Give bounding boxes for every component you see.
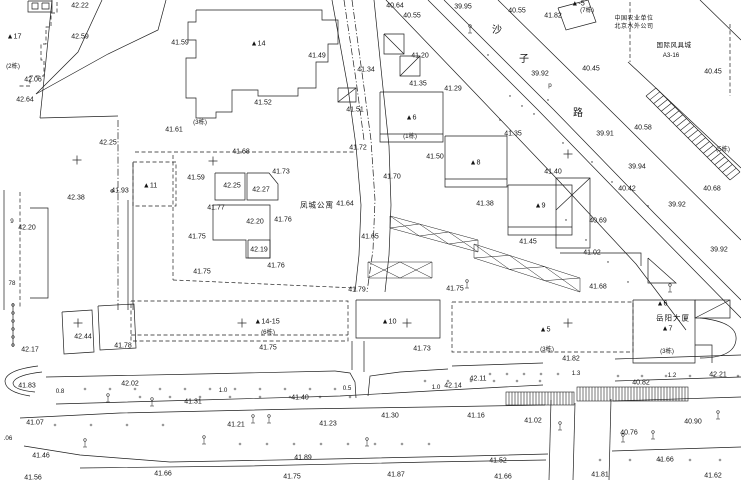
- spot-elevation-label: 41.40: [291, 395, 309, 402]
- spot-elevation-label: 41.77: [207, 205, 225, 212]
- annotation-label: 1.3: [572, 371, 581, 377]
- street-name-char: 沙: [492, 26, 502, 36]
- organization-name-label: 北京水外公司: [614, 24, 653, 30]
- spot-elevation-label: 42.27: [252, 187, 270, 194]
- spot-elevation-label: 40.58: [634, 125, 652, 132]
- building-number-label: ▲7: [661, 324, 672, 331]
- annotation-label: (6栋): [261, 330, 275, 336]
- annotation-label: 9: [10, 219, 13, 225]
- organization-name-label: 中国农业单位: [614, 16, 653, 22]
- spot-elevation-label: 41.75: [446, 286, 464, 293]
- spot-elevation-label: 41.89: [294, 455, 312, 462]
- spot-elevation-label: 39.91: [596, 131, 614, 138]
- spot-elevation-label: 42.17: [21, 347, 39, 354]
- spot-elevation-label: 41.59: [171, 40, 189, 47]
- spot-elevation-label: 41.46: [32, 453, 50, 460]
- spot-elevation-label: 40.90: [684, 419, 702, 426]
- annotation-label: (5栋): [716, 147, 730, 153]
- spot-elevation-label: 41.52: [254, 100, 272, 107]
- spot-elevation-label: 41.76: [267, 263, 285, 270]
- spot-elevation-label: 42.11: [470, 376, 487, 383]
- spot-elevation-label: 41.62: [704, 473, 722, 480]
- spot-elevation-label: 42.19: [250, 247, 268, 254]
- spot-elevation-label: 40.76: [620, 430, 638, 437]
- building-number-label: ▲17: [6, 32, 21, 39]
- spot-elevation-label: 41.07: [26, 420, 44, 427]
- spot-elevation-label: 42.44: [74, 334, 92, 341]
- spot-elevation-label: 42.21: [709, 372, 727, 379]
- spot-elevation-label: 41.78: [114, 343, 132, 350]
- annotation-label: (3栋): [193, 120, 207, 126]
- spot-elevation-label: 41.45: [519, 239, 537, 246]
- spot-elevation-label: 41.79: [348, 287, 366, 294]
- spot-elevation-label: 41.29: [444, 86, 462, 93]
- spot-elevation-label: 41.35: [409, 81, 427, 88]
- spot-elevation-label: 41.31: [184, 399, 202, 406]
- spot-elevation-label: 41.75: [283, 474, 301, 480]
- spot-elevation-label: 39.92: [710, 247, 728, 254]
- spot-elevation-label: 41.66: [656, 457, 674, 464]
- spot-elevation-label: 42.25: [223, 183, 241, 190]
- annotation-label: (1栋): [403, 134, 417, 140]
- spot-elevation-label: 41.93: [111, 188, 129, 195]
- spot-elevation-label: 42.22: [71, 3, 89, 10]
- spot-elevation-label: 41.61: [165, 127, 183, 134]
- spot-elevation-label: 41.83: [18, 383, 36, 390]
- spot-elevation-label: 41.02: [524, 418, 542, 425]
- street-name-char: 子: [519, 55, 529, 65]
- building-number-label: ▲9: [534, 201, 545, 208]
- building-number-label: ▲11: [143, 181, 158, 188]
- spot-elevation-label: 41.87: [387, 472, 405, 479]
- spot-elevation-label: 40.64: [386, 3, 404, 10]
- spot-elevation-label: 41.73: [413, 346, 431, 353]
- place-name-label: 国际风具城: [657, 43, 692, 50]
- street-name-char: 路: [573, 109, 583, 119]
- building-number-label: ▲14-15: [254, 317, 280, 324]
- spot-elevation-label: 41.73: [272, 169, 290, 176]
- spot-elevation-label: 41.38: [476, 201, 494, 208]
- spot-elevation-label: 41.16: [467, 413, 485, 420]
- spot-elevation-label: 41.21: [227, 422, 245, 429]
- annotation-label: 1.2: [668, 373, 677, 379]
- spot-elevation-label: 39.94: [628, 164, 646, 171]
- place-name-label: 岳阳大厦: [656, 314, 690, 322]
- spot-elevation-label: 41.49: [308, 53, 326, 60]
- annotation-label: A3-16: [663, 53, 680, 59]
- spot-elevation-label: 40.69: [589, 218, 607, 225]
- spot-elevation-label: 41.75: [193, 269, 211, 276]
- spot-elevation-label: 41.75: [259, 345, 277, 352]
- spot-elevation-label: 42.20: [246, 219, 264, 226]
- building-number-label: ▲14: [250, 39, 265, 46]
- spot-elevation-label: 41.76: [274, 217, 292, 224]
- spot-elevation-label: 42.64: [16, 97, 34, 104]
- spot-elevation-label: 39.95: [454, 4, 472, 11]
- annotation-label: 0.5: [343, 386, 352, 392]
- annotation-label: 1.0: [219, 388, 228, 394]
- spot-elevation-label: 39.92: [531, 71, 549, 78]
- spot-elevation-label: 41.52: [489, 458, 507, 465]
- spot-elevation-label: 41.20: [411, 53, 429, 60]
- spot-elevation-label: 41.82: [544, 13, 562, 20]
- annotation-label: (3栋): [540, 347, 554, 353]
- spot-elevation-label: 40.55: [508, 8, 526, 15]
- map-labels-layer: 42.2240.6440.5539.9540.5541.82▲-5(7栋)中国农…: [0, 0, 741, 480]
- survey-map-page: 42.2240.6440.5539.9540.5541.82▲-5(7栋)中国农…: [0, 0, 741, 480]
- spot-elevation-label: 42.20: [18, 225, 36, 232]
- annotation-label: 0.8: [56, 389, 65, 395]
- spot-elevation-label: 41.81: [591, 472, 609, 479]
- spot-elevation-label: 41.02: [583, 250, 601, 257]
- annotation-label: 1.0: [432, 385, 441, 391]
- building-number-label: ▲10: [381, 317, 396, 324]
- spot-elevation-label: 40.82: [632, 380, 650, 387]
- spot-elevation-label: 40.55: [403, 13, 421, 20]
- spot-elevation-label: 41.23: [319, 421, 337, 428]
- spot-elevation-label: 41.30: [381, 413, 399, 420]
- spot-elevation-label: 42.25: [99, 140, 117, 147]
- annotation-label: .06: [4, 436, 13, 442]
- spot-elevation-label: 41.66: [494, 474, 512, 480]
- spot-elevation-label: 41.70: [383, 174, 401, 181]
- spot-elevation-label: 41.68: [589, 284, 607, 291]
- spot-elevation-label: 41.64: [336, 201, 354, 208]
- spot-elevation-label: 41.50: [426, 154, 444, 161]
- building-number-label: ▲5: [539, 325, 550, 332]
- spot-elevation-label: 42.02: [121, 381, 139, 388]
- spot-elevation-label: 39.92: [668, 202, 686, 209]
- spot-elevation-label: 41.35: [504, 131, 522, 138]
- spot-elevation-label: 40.45: [704, 69, 722, 76]
- building-number-label: ▲-5: [571, 0, 585, 7]
- building-number-label: ▲8: [469, 158, 480, 165]
- annotation-label: (2栋): [6, 64, 20, 70]
- spot-elevation-label: 41.51: [346, 107, 364, 114]
- spot-elevation-label: 41.75: [188, 234, 206, 241]
- spot-elevation-label: 42.06: [24, 77, 42, 84]
- spot-elevation-label: 42.59: [71, 34, 89, 41]
- spot-elevation-label: 41.65: [361, 234, 379, 241]
- building-number-label: ▲6: [405, 113, 416, 120]
- spot-elevation-label: 42.14: [444, 383, 462, 390]
- annotation-label: (3栋): [660, 349, 674, 355]
- spot-elevation-label: 42.38: [67, 195, 85, 202]
- spot-elevation-label: 41.40: [544, 169, 562, 176]
- annotation-label: (7栋): [580, 8, 594, 14]
- spot-elevation-label: 41.34: [357, 67, 375, 74]
- spot-elevation-label: 40.45: [582, 66, 600, 73]
- spot-elevation-label: 41.68: [232, 149, 250, 156]
- building-number-label: ▲6: [656, 299, 667, 306]
- spot-elevation-label: 41.82: [562, 356, 580, 363]
- spot-elevation-label: 41.59: [187, 175, 205, 182]
- spot-elevation-label: 41.56: [24, 475, 42, 480]
- place-name-label: 凤城公寓: [300, 201, 334, 209]
- spot-elevation-label: 40.68: [703, 186, 721, 193]
- spot-elevation-label: 41.66: [154, 471, 172, 478]
- annotation-label: 78: [9, 281, 16, 287]
- spot-elevation-label: 41.72: [349, 145, 367, 152]
- spot-elevation-label: 40.42: [618, 186, 636, 193]
- annotation-label: p: [548, 83, 551, 89]
